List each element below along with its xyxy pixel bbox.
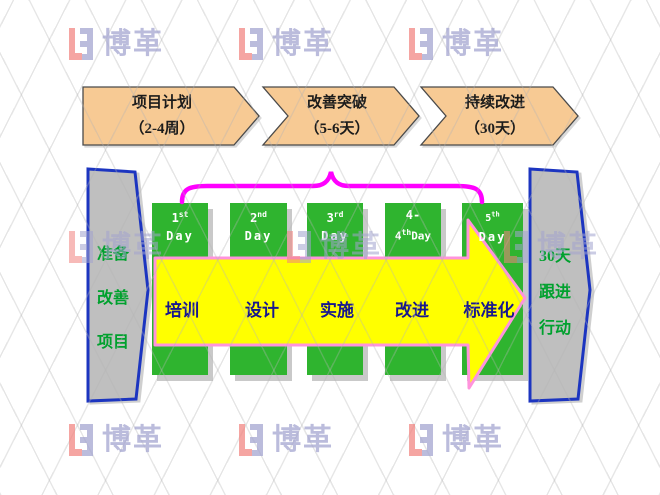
right-banner-label: 30天 跟进 行动	[531, 242, 579, 338]
right-banner-line-2: 跟进	[531, 278, 579, 302]
slide-canvas: 项目计划 （2-4周） 改善突破 （5-6天） 持续改进 （30天） 1st D…	[0, 0, 660, 495]
week-brace	[182, 172, 482, 202]
step-label-standardize: 标准化	[458, 296, 520, 321]
phase-3-label: 持续改进 （30天）	[424, 94, 566, 139]
day-5-label: 5th Day	[462, 207, 523, 245]
day-2-label: 2nd Day	[230, 207, 287, 244]
phase-3-title: 持续改进	[424, 94, 566, 113]
left-banner-label: 准备 改善 项目	[89, 240, 137, 352]
step-label-training: 培训	[155, 296, 209, 321]
step-label-improve: 改进	[385, 296, 439, 321]
phase-1-label: 项目计划 （2-4周）	[86, 94, 238, 139]
step-label-design: 设计	[235, 296, 289, 321]
step-label-implement: 实施	[310, 296, 364, 321]
phase-2-duration: （5-6天）	[266, 120, 408, 139]
phase-2-title: 改善突破	[266, 94, 408, 113]
day-4-label: 4- 4thDay	[385, 207, 441, 245]
phase-1-title: 项目计划	[86, 94, 238, 113]
phase-2-label: 改善突破 （5-6天）	[266, 94, 408, 139]
phase-3-duration: （30天）	[424, 120, 566, 139]
day-3-label: 3rd Day	[307, 207, 363, 244]
left-banner-line-3: 项目	[89, 328, 137, 352]
day-1-label: 1st Day	[152, 207, 208, 244]
right-banner-line-3: 行动	[531, 314, 579, 338]
left-banner-line-1: 准备	[89, 240, 137, 264]
right-banner-line-1: 30天	[531, 242, 579, 266]
left-banner-line-2: 改善	[89, 284, 137, 308]
phase-1-duration: （2-4周）	[86, 120, 238, 139]
